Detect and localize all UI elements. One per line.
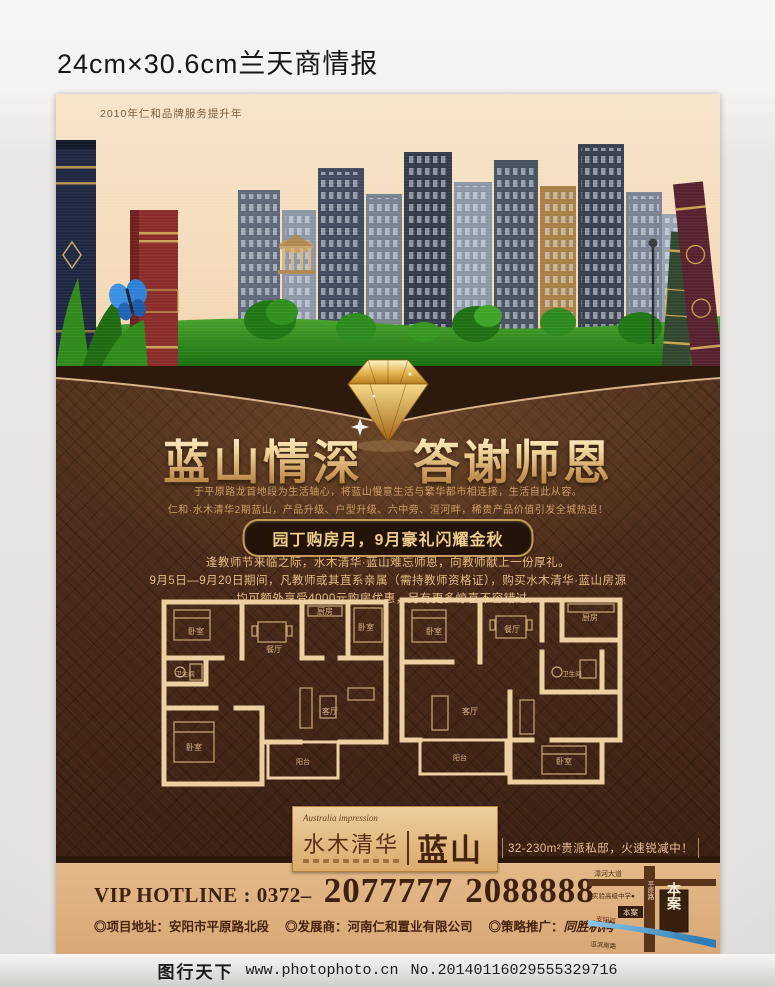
room-label-kitchen: 厨房	[582, 612, 598, 622]
promo-body-line2: 9月5日—9月20日期间，凡教师或其直系亲属（需持教师资格证），购买水木清华·蓝…	[56, 572, 720, 590]
room-label-bedroom: 卧室	[556, 756, 572, 766]
room-label-dining: 餐厅	[266, 645, 282, 654]
logo-name-right: 蓝山	[417, 825, 483, 870]
watermark-brand: 图行天下	[157, 958, 233, 983]
intro-line-2: 仁和·水木清华2期蓝山，产品升级、户型升级、六中旁、洹河畔，稀贵产品价值引发全城…	[56, 501, 720, 516]
floorplan-a3: 卧室 餐厅 厨房 卫生间 客厅 卧室 阳台	[392, 592, 630, 790]
hotline-number-1: 2077777	[324, 871, 454, 911]
watermark-url: www.photophoto.cn	[245, 962, 398, 979]
logo-name-left: 水木清华	[303, 833, 399, 857]
hero-scene: 2010年仁和品牌服务提升年	[56, 94, 720, 370]
logo-subline	[303, 859, 399, 863]
room-label-balcony: 阳台	[296, 757, 310, 766]
project-address: ◎项目地址：安阳市平原路北段	[94, 916, 269, 935]
room-label-bedroom: 卧室	[186, 742, 202, 752]
real-estate-poster: 2010年仁和品牌服务提升年 蓝山情深 答谢师恩 于平原路龙首地段为生活轴心，将…	[56, 94, 720, 954]
room-label-bath: 卫生间	[562, 669, 582, 678]
room-label-living: 客厅	[462, 706, 478, 716]
location-map: 漳河大道 平原路 实验高级中学● 本案 本案 安阳河 洹滨南路	[588, 866, 718, 952]
room-label-balcony: 阳台	[453, 753, 467, 762]
hotline: VIP HOTLINE : 0372– 2077777 2088888	[94, 871, 595, 911]
watermark-bar: 图行天下 www.photophoto.cn No.20140116029555…	[0, 954, 775, 987]
hotline-number-2: 2088888	[465, 871, 595, 911]
page-title: 24cm×30.6cm兰天商情报	[57, 42, 378, 81]
map-road-vertical	[644, 866, 655, 952]
promo-banner: 园丁购房月，9月豪礼闪耀金秋	[243, 519, 534, 557]
floorplan-b3: 卧室 餐厅 卧室 厨房 卫生间 客厅 卧室 阳台	[150, 592, 400, 790]
map-site-small-label: 本案	[623, 907, 638, 917]
room-label-bedroom: 卧室	[426, 626, 442, 636]
logo-separator	[407, 831, 409, 865]
promo-body-line1: 逢教师节来临之际，水木清华·蓝山难忘师恩，向教师献上一份厚礼。	[56, 554, 720, 572]
hotline-label: VIP HOTLINE : 0372–	[94, 883, 312, 908]
diamond-icon	[340, 346, 436, 456]
room-label-bath: 卫生间	[175, 669, 195, 678]
stock-image-page: 24cm×30.6cm兰天商情报	[0, 0, 775, 987]
map-road-bottom-label: 洹滨南路	[590, 939, 617, 951]
watermark-serial: No.20140116029555329716	[410, 962, 617, 979]
intro-line-1: 于平原路龙首地段为生活轴心，将蓝山慢意生活与繁华都市相连接，生活自此从容。	[56, 483, 720, 498]
map-site-large-label: 本案	[666, 881, 682, 911]
room-label-living: 客厅	[322, 706, 338, 716]
room-label-bedroom: 卧室	[358, 622, 374, 632]
logo-script: Australia impression	[303, 813, 487, 823]
map-school-label: 实验高级中学●	[592, 891, 635, 900]
map-road-top-label: 漳河大道	[594, 869, 622, 878]
project-info: ◎项目地址：安阳市平原路北段 ◎发展商：河南仁和置业有限公司 ◎策略推广：同胜机…	[94, 916, 614, 935]
project-developer: ◎发展商：河南仁和置业有限公司	[285, 916, 473, 935]
brand-logo: Australia impression 水木清华 蓝山	[292, 806, 498, 872]
room-label-bedroom: 卧室	[188, 626, 204, 636]
room-label-dining: 餐厅	[504, 625, 520, 634]
hero-illustration	[56, 94, 720, 370]
sales-tagline: 32-230m²贵派私邸，火速锐减中！	[502, 838, 728, 858]
footer-strip: VIP HOTLINE : 0372– 2077777 2088888 ◎项目地…	[56, 864, 720, 954]
campaign-note: 2010年仁和品牌服务提升年	[100, 106, 242, 121]
room-label-kitchen: 厨房	[317, 606, 333, 616]
